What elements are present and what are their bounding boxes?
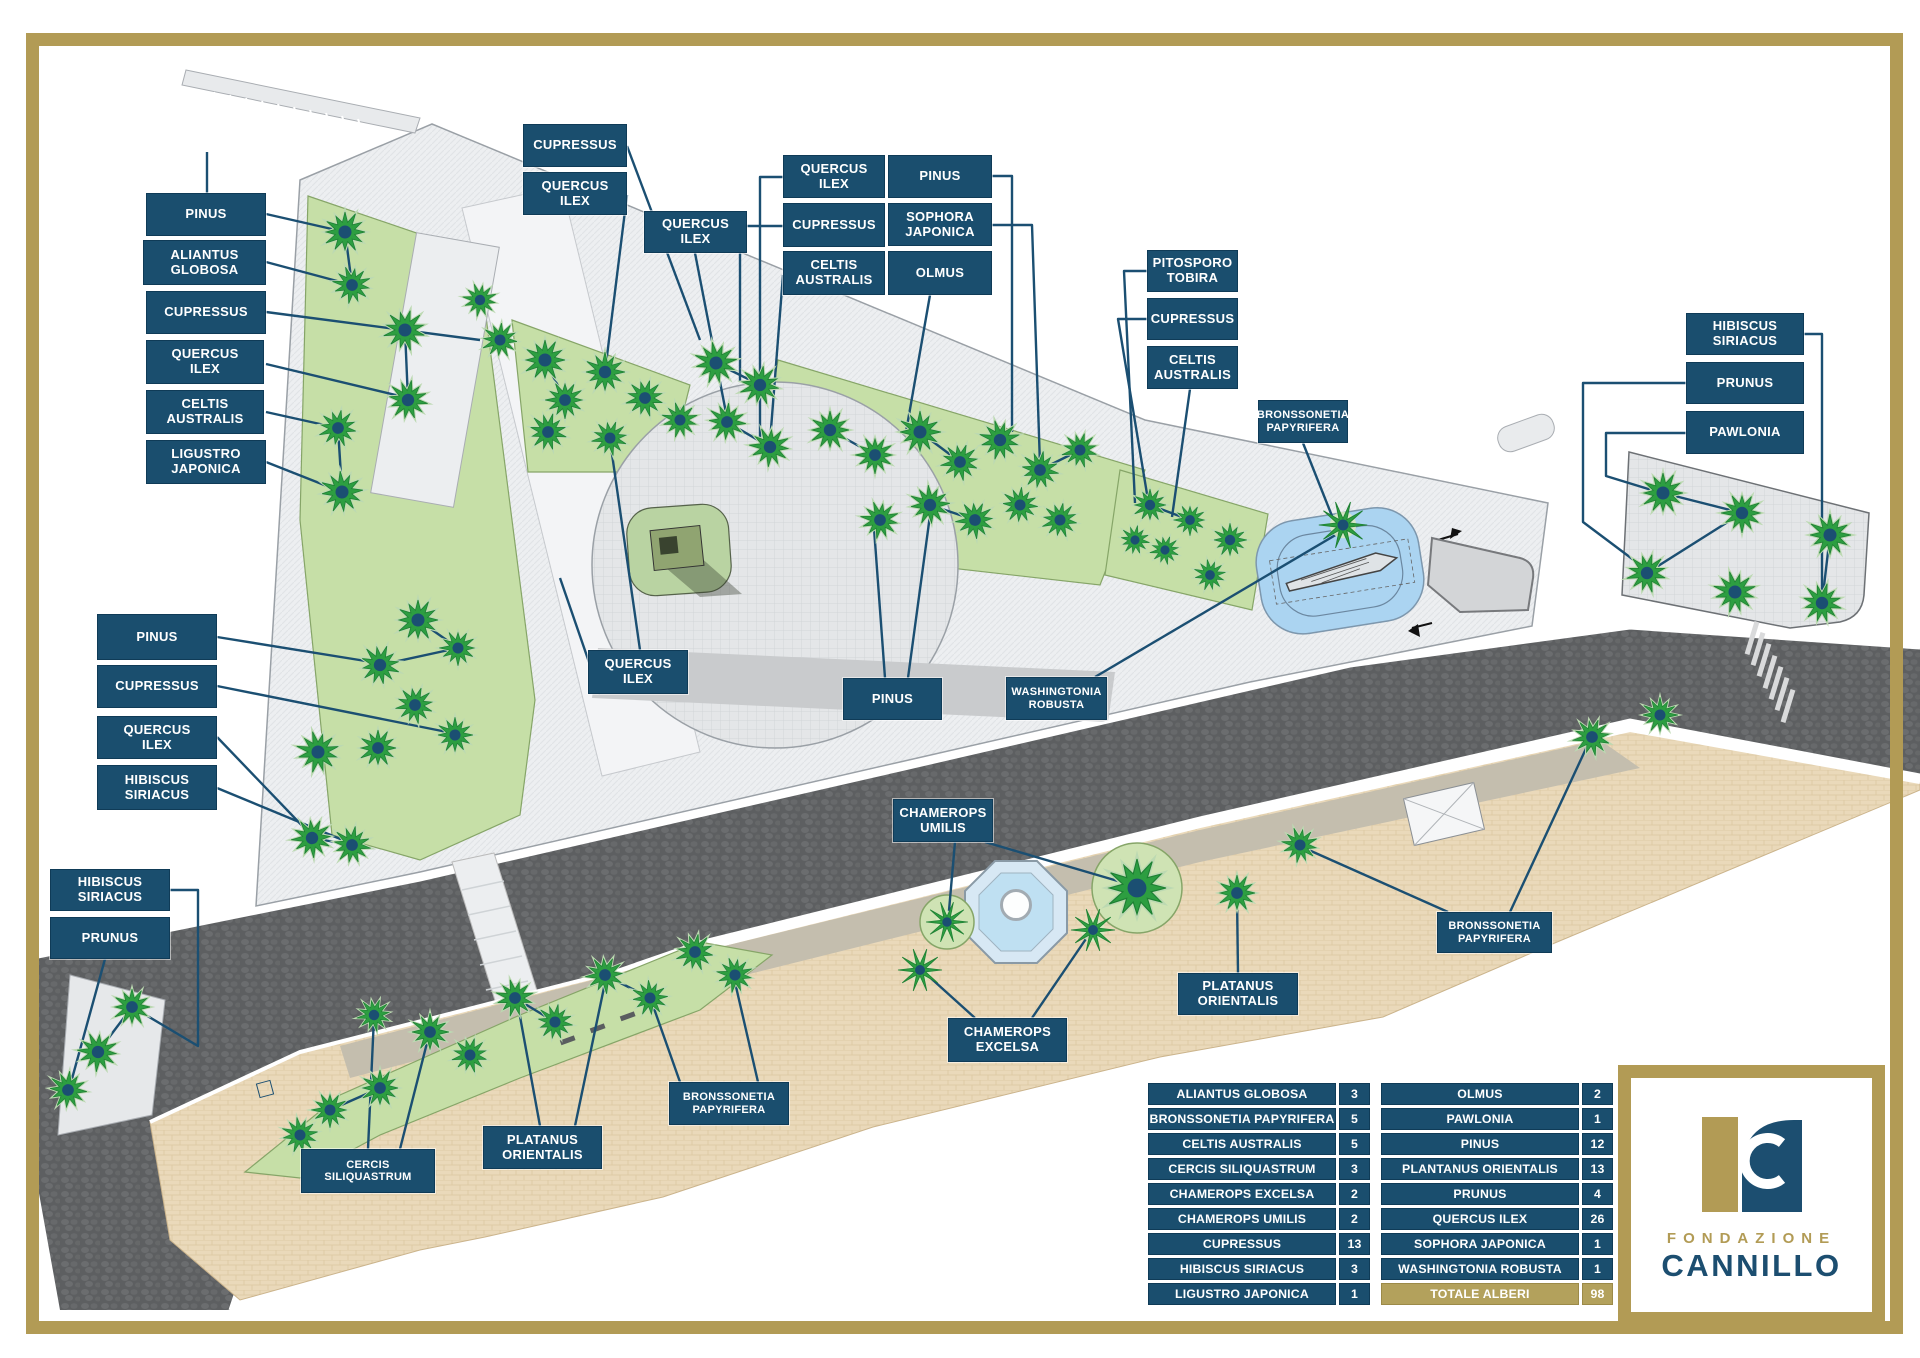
fondazione-cannillo-logo: FONDAZIONE CANNILLO (1618, 1065, 1885, 1325)
legend-row: CERCIS SILIQUASTRUM3 (1148, 1158, 1370, 1180)
legend-row: QUERCUS ILEX26 (1381, 1208, 1613, 1230)
legend-row: HIBISCUS SIRIACUS3 (1148, 1258, 1370, 1280)
cannillo-monogram-icon (1702, 1116, 1802, 1214)
species-label-bronssonetia-papyrifera: BRONSSONETIA PAPYRIFERA (669, 1082, 789, 1125)
legend-species-name: OLMUS (1381, 1083, 1579, 1105)
species-label-bronssonetia-papyrifera: BRONSSONETIA PAPYRIFERA (1258, 400, 1348, 443)
site-plan-page: PINUSALIANTUS GLOBOSACUPRESSUSQUERCUS IL… (0, 0, 1920, 1358)
legend-row: SOPHORA JAPONICA1 (1381, 1233, 1613, 1255)
species-label-cupressus: CUPRESSUS (1147, 298, 1238, 340)
legend-species-count: 3 (1339, 1083, 1370, 1105)
species-label-sophora-japonica: SOPHORA JAPONICA (888, 203, 992, 246)
species-label-quercus-ilex: QUERCUS ILEX (783, 155, 885, 198)
legend-species-count: 3 (1339, 1158, 1370, 1180)
species-label-pinus: PINUS (843, 678, 942, 720)
species-label-ligustro-japonica: LIGUSTRO JAPONICA (146, 440, 266, 484)
species-label-pawlonia: PAWLONIA (1686, 411, 1804, 454)
legend-species-count: 2 (1582, 1083, 1613, 1105)
legend-total-count: 98 (1582, 1283, 1613, 1305)
legend-row: CELTIS AUSTRALIS5 (1148, 1133, 1370, 1155)
legend-row: LIGUSTRO JAPONICA1 (1148, 1283, 1370, 1305)
legend-row: PAWLONIA1 (1381, 1108, 1613, 1130)
species-label-celtis-australis: CELTIS AUSTRALIS (1147, 346, 1238, 389)
legend-row: WASHINGTONIA ROBUSTA1 (1381, 1258, 1613, 1280)
species-label-aliantus-globosa: ALIANTUS GLOBOSA (143, 240, 266, 285)
species-label-cercis-siliquastrum: CERCIS SILIQUASTRUM (301, 1149, 435, 1193)
legend-species-count: 4 (1582, 1183, 1613, 1205)
legend-species-name: PINUS (1381, 1133, 1579, 1155)
species-label-washingtonia-robusta: WASHINGTONIA ROBUSTA (1006, 677, 1107, 720)
species-label-quercus-ilex: QUERCUS ILEX (644, 211, 747, 253)
legend-table-left: ALIANTUS GLOBOSA3BRONSSONETIA PAPYRIFERA… (1148, 1083, 1370, 1308)
legend-species-count: 1 (1339, 1283, 1370, 1305)
species-label-pitosporo-tobira: PITOSPORO TOBIRA (1147, 250, 1238, 292)
species-label-quercus-ilex: QUERCUS ILEX (523, 172, 627, 215)
species-label-prunus: PRUNUS (50, 917, 170, 959)
legend-row: PRUNUS4 (1381, 1183, 1613, 1205)
logo-org-name: CANNILLO (1661, 1248, 1841, 1284)
legend-species-name: BRONSSONETIA PAPYRIFERA (1148, 1108, 1336, 1130)
species-label-celtis-australis: CELTIS AUSTRALIS (783, 251, 885, 295)
species-label-platanus-orientalis: PLATANUS ORIENTALIS (483, 1126, 602, 1169)
legend-species-count: 1 (1582, 1108, 1613, 1130)
species-label-chamerops-excelsa: CHAMEROPS EXCELSA (948, 1018, 1067, 1062)
species-label-hibiscus-siriacus: HIBISCUS SIRIACUS (97, 765, 217, 810)
legend-species-name: LIGUSTRO JAPONICA (1148, 1283, 1336, 1305)
species-label-quercus-ilex: QUERCUS ILEX (97, 716, 217, 759)
species-label-prunus: PRUNUS (1686, 362, 1804, 404)
legend-species-name: CERCIS SILIQUASTRUM (1148, 1158, 1336, 1180)
legend-species-name: CHAMEROPS EXCELSA (1148, 1183, 1336, 1205)
legend-species-name: PRUNUS (1381, 1183, 1579, 1205)
legend-row: PLANTANUS ORIENTALIS13 (1381, 1158, 1613, 1180)
legend-row: OLMUS2 (1381, 1083, 1613, 1105)
legend-row: CHAMEROPS EXCELSA2 (1148, 1183, 1370, 1205)
legend-row: CUPRESSUS13 (1148, 1233, 1370, 1255)
species-label-olmus: OLMUS (888, 251, 992, 295)
legend-species-name: CUPRESSUS (1148, 1233, 1336, 1255)
legend-species-count: 13 (1582, 1158, 1613, 1180)
species-label-pinus: PINUS (146, 193, 266, 236)
legend-species-name: CELTIS AUSTRALIS (1148, 1133, 1336, 1155)
legend-species-name: CHAMEROPS UMILIS (1148, 1208, 1336, 1230)
legend-species-name: WASHINGTONIA ROBUSTA (1381, 1258, 1579, 1280)
legend-species-count: 1 (1582, 1233, 1613, 1255)
legend-species-count: 5 (1339, 1133, 1370, 1155)
legend-species-count: 2 (1339, 1208, 1370, 1230)
species-label-hibiscus-siriacus: HIBISCUS SIRIACUS (50, 869, 170, 911)
legend-total-label: TOTALE ALBERI (1381, 1283, 1579, 1305)
legend-species-name: PAWLONIA (1381, 1108, 1579, 1130)
species-label-quercus-ilex: QUERCUS ILEX (588, 650, 688, 694)
species-label-celtis-australis: CELTIS AUSTRALIS (146, 390, 264, 434)
species-label-cupressus: CUPRESSUS (146, 291, 266, 334)
legend-species-count: 3 (1339, 1258, 1370, 1280)
legend-total-row: TOTALE ALBERI98 (1381, 1283, 1613, 1305)
species-label-pinus: PINUS (888, 155, 992, 198)
species-label-cupressus: CUPRESSUS (783, 203, 885, 247)
species-label-platanus-orientalis: PLATANUS ORIENTALIS (1178, 973, 1298, 1015)
legend-species-count: 1 (1582, 1258, 1613, 1280)
species-label-hibiscus-siriacus: HIBISCUS SIRIACUS (1686, 313, 1804, 355)
species-label-quercus-ilex: QUERCUS ILEX (146, 340, 264, 384)
legend-species-count: 5 (1339, 1108, 1370, 1130)
legend-row: BRONSSONETIA PAPYRIFERA5 (1148, 1108, 1370, 1130)
species-label-pinus: PINUS (97, 614, 217, 660)
logo-org-type: FONDAZIONE (1667, 1230, 1836, 1247)
legend-species-name: ALIANTUS GLOBOSA (1148, 1083, 1336, 1105)
legend-species-count: 13 (1339, 1233, 1370, 1255)
legend-species-count: 12 (1582, 1133, 1613, 1155)
legend-species-name: SOPHORA JAPONICA (1381, 1233, 1579, 1255)
legend-species-count: 2 (1339, 1183, 1370, 1205)
legend-species-name: QUERCUS ILEX (1381, 1208, 1579, 1230)
legend-row: ALIANTUS GLOBOSA3 (1148, 1083, 1370, 1105)
species-label-cupressus: CUPRESSUS (523, 124, 627, 167)
species-label-chamerops-umilis: CHAMEROPS UMILIS (893, 799, 993, 842)
legend-row: CHAMEROPS UMILIS2 (1148, 1208, 1370, 1230)
legend-table-right: OLMUS2PAWLONIA1PINUS12PLANTANUS ORIENTAL… (1381, 1083, 1613, 1308)
species-label-bronssonetia-papyrifera: BRONSSONETIA PAPYRIFERA (1437, 912, 1552, 953)
legend-row: PINUS12 (1381, 1133, 1613, 1155)
legend-species-name: HIBISCUS SIRIACUS (1148, 1258, 1336, 1280)
legend-species-count: 26 (1582, 1208, 1613, 1230)
legend-species-name: PLANTANUS ORIENTALIS (1381, 1158, 1579, 1180)
species-label-cupressus: CUPRESSUS (97, 665, 217, 708)
